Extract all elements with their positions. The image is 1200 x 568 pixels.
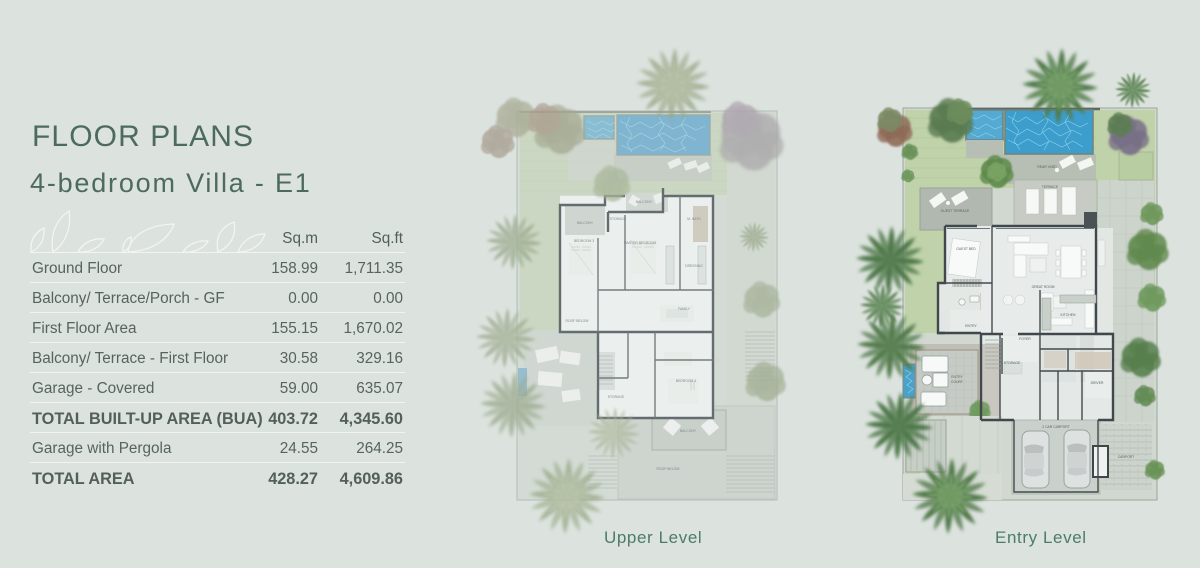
svg-text:TERRACE: TERRACE <box>1042 185 1059 189</box>
svg-text:FAMILY: FAMILY <box>678 307 691 311</box>
svg-text:BEDROOM 4: BEDROOM 4 <box>676 379 696 383</box>
svg-text:M. BATH: M. BATH <box>687 217 701 221</box>
svg-text:ROOF BELOW: ROOF BELOW <box>566 319 590 323</box>
svg-text:KITCHEN: KITCHEN <box>1061 313 1076 317</box>
svg-text:DRIVER: DRIVER <box>1091 381 1104 385</box>
svg-text:GUEST BED: GUEST BED <box>956 247 976 251</box>
svg-text:2 CAR CARPORT: 2 CAR CARPORT <box>1042 425 1069 429</box>
svg-text:CARPORT: CARPORT <box>1118 455 1135 459</box>
svg-text:ENTRY: ENTRY <box>965 324 977 328</box>
svg-text:FOYER: FOYER <box>1019 337 1031 341</box>
svg-text:DRESSING: DRESSING <box>685 264 703 268</box>
svg-text:ENTRY: ENTRY <box>951 375 963 379</box>
svg-text:STORAGE: STORAGE <box>608 395 625 399</box>
svg-text:BEDROOM 3: BEDROOM 3 <box>574 239 594 243</box>
svg-text:GREAT ROOM: GREAT ROOM <box>1032 285 1055 289</box>
svg-text:MASTER BEDROOM: MASTER BEDROOM <box>624 241 657 245</box>
svg-text:STORAGE: STORAGE <box>610 217 627 221</box>
svg-text:GUEST TERRACE: GUEST TERRACE <box>941 209 970 213</box>
svg-text:COURT: COURT <box>951 380 963 384</box>
svg-text:BALCONY: BALCONY <box>680 429 697 433</box>
svg-text:REAR YARD: REAR YARD <box>1037 165 1057 169</box>
svg-text:BALCONY: BALCONY <box>577 221 594 225</box>
svg-text:ROOF BELOW: ROOF BELOW <box>657 467 681 471</box>
svg-text:STORAGE: STORAGE <box>1004 361 1021 365</box>
svg-text:BALCONY: BALCONY <box>636 200 653 204</box>
